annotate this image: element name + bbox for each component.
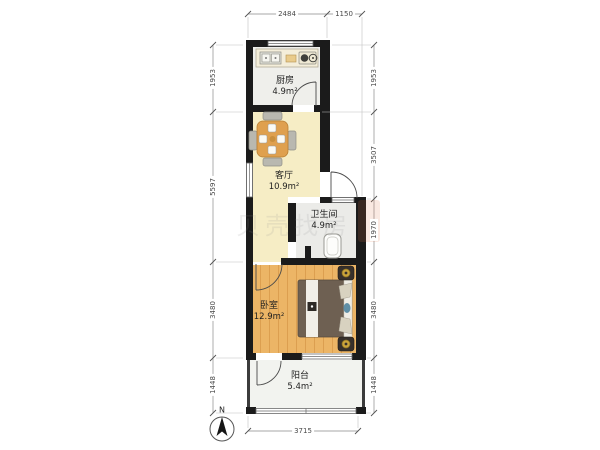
room-area: 4.9m² [272,87,297,98]
plate [277,135,285,143]
floorplan-canvas: 贝壳找房 厨房 4.9m² 客厅 10.9m² 卫生间 4.9m² 卧室 12.… [0,0,600,450]
dim-top-2: 1150 [333,10,355,18]
pillow [339,283,352,299]
room-name: 厨房 [272,76,297,87]
room-name: 卫生间 [310,210,337,221]
room-name: 客厅 [269,171,300,182]
room-name: 卧室 [254,301,285,312]
dim-left-3: 3480 [209,299,217,321]
room-area: 5.4m² [287,382,312,393]
bedroom-window [302,354,352,359]
dim-right-2: 3507 [370,144,378,166]
dim-left-4: 1448 [209,374,217,396]
pillow [339,317,352,334]
kitchen-window [268,41,313,46]
bathroom-window [332,198,354,203]
dim-left-2: 5597 [209,176,217,198]
chair [263,158,282,166]
bed-cushion [344,303,351,313]
plate [268,146,276,154]
living-room-window [247,163,253,197]
kitchen-label: 厨房 4.9m² [272,76,297,98]
chair [288,131,296,150]
dim-top-1: 2484 [276,10,298,18]
room-area: 4.9m² [310,221,337,232]
room-area: 12.9m² [254,312,285,323]
chair [249,131,257,150]
stove-icon [299,52,317,64]
room-area: 10.9m² [269,182,300,193]
chair [263,112,282,120]
bathroom-label: 卫生间 4.9m² [310,210,337,232]
dim-right-1: 1953 [370,67,378,89]
balcony-label: 阳台 5.4m² [287,371,312,393]
entrance-door [331,172,357,198]
dim-bottom-1: 3715 [292,427,314,435]
sink-icon [260,52,281,64]
plate [259,135,267,143]
compass [210,417,234,441]
dim-right-5: 1448 [370,374,378,396]
balcony-window [256,409,356,414]
room-name: 阳台 [287,371,312,382]
dim-right-3: 1970 [370,219,378,241]
plate [268,124,276,132]
dim-left-1: 1953 [209,67,217,89]
bedroom-label: 卧室 12.9m² [254,301,285,323]
living-room-label: 客厅 10.9m² [269,171,300,193]
cutting-board-icon [286,55,296,62]
kitchen-counter [256,49,318,67]
compass-north-label: N [219,406,225,415]
table-center [270,136,276,142]
nightstand [338,266,354,280]
nightstand [338,337,354,351]
dim-right-4: 3480 [370,299,378,321]
